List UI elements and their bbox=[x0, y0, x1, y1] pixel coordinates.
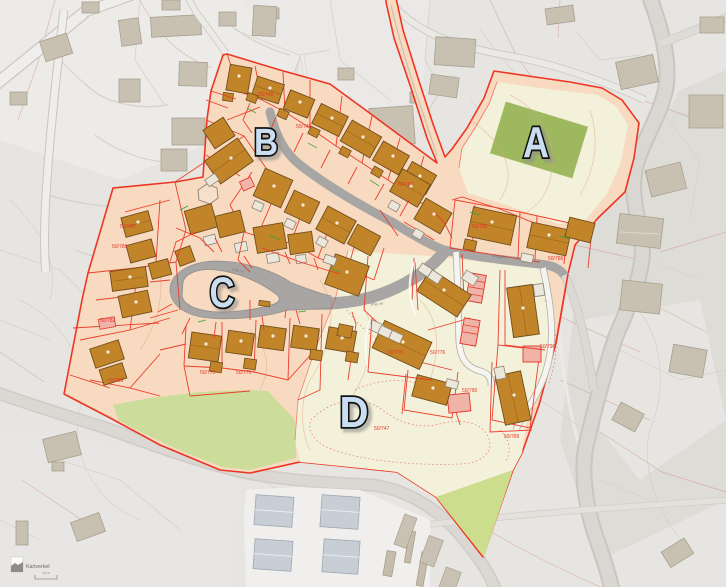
svg-text:50/748: 50/748 bbox=[296, 124, 312, 130]
svg-text:A: A bbox=[523, 118, 549, 167]
svg-text:50/789: 50/789 bbox=[108, 378, 124, 384]
svg-text:D: D bbox=[340, 388, 369, 437]
svg-text:50/748: 50/748 bbox=[258, 92, 274, 98]
svg-text:50/785: 50/785 bbox=[112, 244, 128, 250]
svg-text:50/775: 50/775 bbox=[200, 370, 216, 376]
svg-text:50/789: 50/789 bbox=[504, 434, 520, 440]
svg-text:50/787: 50/787 bbox=[398, 182, 414, 188]
svg-text:50/790: 50/790 bbox=[540, 344, 556, 350]
svg-text:50/788: 50/788 bbox=[472, 224, 488, 230]
svg-text:50/790: 50/790 bbox=[462, 388, 478, 394]
svg-text:10 m: 10 m bbox=[42, 571, 50, 575]
svg-text:50/775: 50/775 bbox=[388, 350, 404, 356]
svg-text:50/775: 50/775 bbox=[236, 370, 252, 376]
svg-text:50/785: 50/785 bbox=[120, 224, 136, 230]
svg-text:50/776: 50/776 bbox=[430, 350, 446, 356]
svg-text:C: C bbox=[210, 269, 235, 317]
svg-text:Kartverket: Kartverket bbox=[26, 564, 50, 570]
svg-text:50/747: 50/747 bbox=[374, 426, 390, 432]
svg-text:50/782: 50/782 bbox=[100, 318, 116, 324]
svg-text:B: B bbox=[254, 122, 278, 164]
svg-text:50/786: 50/786 bbox=[548, 256, 564, 262]
